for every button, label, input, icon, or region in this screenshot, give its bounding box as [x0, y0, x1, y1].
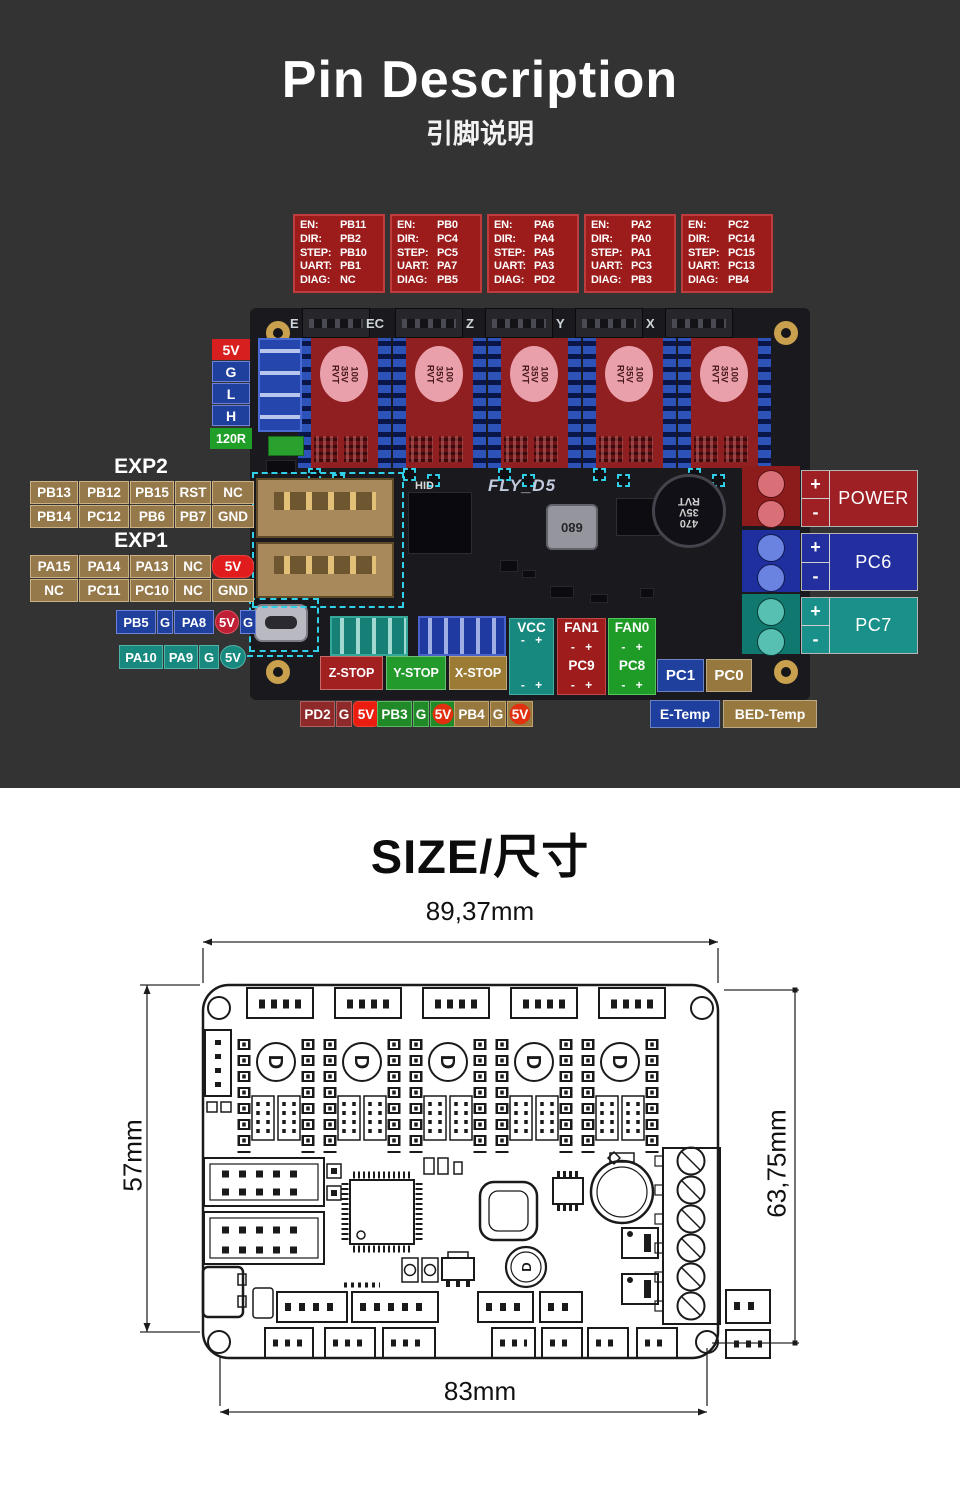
pin-key: UART: [688, 260, 728, 273]
pc9-label: PC9 [568, 659, 594, 673]
component [590, 594, 608, 603]
left-side-parts [203, 1030, 341, 1318]
exp-cell: PC11 [79, 579, 129, 602]
exp-cell: PA14 [79, 555, 129, 578]
jumper-block [694, 436, 718, 462]
screw [757, 598, 785, 626]
svg-text:D: D [436, 1055, 458, 1069]
pin-key: DIR: [494, 233, 534, 246]
pin-value: PC2 [728, 219, 767, 232]
fan1-label: FAN1 [564, 621, 599, 635]
exp-cell: PB15 [130, 481, 174, 504]
plus-mark: + [802, 471, 829, 499]
connector-pins [309, 319, 363, 328]
pin-value: PB3 [631, 274, 670, 287]
exp-cell: PA15 [30, 555, 78, 578]
pc6-terminal-label: + - PC6 [801, 533, 918, 591]
usb-callout-outline [249, 598, 319, 652]
exp2-row1: PB13 PB12 PB15 RST NC [30, 481, 255, 504]
page: Pin Description 引脚说明 E EC Z Y X [0, 0, 960, 1491]
connector-pins [672, 319, 726, 328]
connector-pins [492, 319, 546, 328]
exp-cell-5v: 5V [212, 555, 254, 578]
e-temp-label: E-Temp [650, 700, 720, 728]
pin-cell: PA8 [174, 610, 214, 634]
stepper-driver: 100 35V RVT [678, 338, 771, 468]
pin-socket [473, 338, 486, 468]
dim-height-right: 63,75mm [762, 1099, 793, 1229]
screw [757, 470, 785, 498]
pin-value: PB5 [437, 274, 476, 287]
driver-capacitor: 100 35V RVT [700, 346, 748, 402]
cap-text: RVT [520, 365, 530, 384]
motor-connector [302, 308, 370, 338]
cap-text: 100 [729, 365, 739, 384]
motor-connector [665, 308, 733, 338]
mcu-chip [408, 492, 472, 554]
pin-key: EN: [494, 219, 534, 232]
stepper-driver: 100 35V RVT [488, 338, 581, 468]
pc1-label: PC1 [657, 659, 704, 692]
pin-cell-5v: 5V [507, 701, 533, 727]
pin-cell: PD2 [300, 701, 335, 727]
pin-cell: G [240, 610, 256, 634]
pin-value: PB1 [340, 260, 379, 273]
jumper-block [409, 436, 433, 462]
exp-cell: PB7 [175, 505, 211, 528]
pin-value: PA0 [631, 233, 670, 246]
pin-value: PA4 [534, 233, 573, 246]
screw [757, 564, 785, 592]
motor-connector [395, 308, 463, 338]
stepper-driver: 100 35V RVT [583, 338, 676, 468]
pin-value: PA6 [534, 219, 573, 232]
electrolytic-capacitor: 470 35V RVT [652, 474, 726, 548]
polarity-marks: - + [621, 642, 642, 653]
port-label-x: X [646, 316, 655, 331]
exp2-title: EXP2 [30, 455, 252, 479]
level-g: G [212, 361, 250, 382]
jumper-block [504, 436, 528, 462]
pin-key: EN: [688, 219, 728, 232]
jumper-block [599, 436, 623, 462]
pin-key: DIAG: [688, 274, 728, 287]
terminator-jumper [268, 436, 304, 456]
pin-cell: G [336, 701, 352, 727]
mcu-drawing [345, 1175, 419, 1249]
fan1-pc9-header: FAN1 - + PC9 - + [557, 618, 606, 695]
cap-text: 100 [539, 365, 549, 384]
pin-value: PA7 [437, 260, 476, 273]
dimension-lines [140, 942, 799, 1412]
probe-connector [258, 338, 302, 432]
pin-cell-5v: 5V [215, 610, 239, 634]
x-stop-label: X-STOP [449, 656, 507, 690]
pin-socket [583, 338, 596, 468]
pin-key: UART: [591, 260, 631, 273]
cap-text: 35V [719, 365, 729, 384]
pb4-temp-header: PB4 G 5V [454, 701, 534, 727]
screw [757, 500, 785, 528]
svg-text:D: D [522, 1055, 544, 1069]
exp-cell: GND [212, 579, 254, 602]
jumper-pins [258, 1102, 638, 1134]
inductor: 680 [546, 504, 598, 550]
power-terminal-label: + - POWER [801, 470, 918, 527]
terminal-name: PC7 [830, 598, 917, 653]
motor-connector [575, 308, 643, 338]
polarity-marks: - + [571, 642, 592, 653]
plus-mark: + [802, 534, 829, 563]
mounting-hole [774, 321, 798, 345]
port-label-y: Y [556, 316, 565, 331]
probe-header-blue: PB5 G PA8 5V G [116, 610, 257, 634]
pin-key: EN: [300, 219, 340, 232]
exp1-row2: NC PC11 PC10 NC GND [30, 579, 255, 602]
exp-cell: GND [212, 505, 254, 528]
cap-text: RVT [615, 365, 625, 384]
cap-text: 35V [624, 365, 634, 384]
exp-cell: RST [175, 481, 211, 504]
bed-temp-label: BED-Temp [723, 700, 817, 728]
pin-socket [378, 338, 391, 468]
terminator-120r: 120R [210, 428, 252, 449]
cap-text: 100 [634, 365, 644, 384]
pc6-terminal-block [742, 530, 800, 592]
pin-description-section: Pin Description 引脚说明 E EC Z Y X [0, 0, 960, 788]
cap-text: 35V [434, 365, 444, 384]
polarity-column: + - [802, 534, 830, 590]
terminal-name: PC6 [830, 534, 917, 590]
level-h: H [212, 405, 250, 426]
power-terminal-block [742, 466, 800, 526]
pin-key: EN: [397, 219, 437, 232]
dim-width-bottom: 83mm [330, 1376, 630, 1407]
driver-capacitor: 100 35V RVT [605, 346, 653, 402]
stepper-driver: 100 35V RVT [298, 338, 391, 468]
pin-key: STEP: [688, 247, 728, 260]
pin-key: STEP: [494, 247, 534, 260]
pin-key: STEP: [591, 247, 631, 260]
cap-text: RVT [330, 365, 340, 384]
polarity-marks: - + [571, 680, 592, 691]
size-section: SIZE/尺寸 [0, 788, 960, 1491]
component [640, 588, 654, 598]
board-outline [203, 985, 718, 1358]
uart-header [593, 468, 606, 481]
minus-mark: - [802, 499, 829, 526]
fan0-label: FAN0 [615, 621, 650, 635]
pin-cell: G [157, 610, 173, 634]
driver-pinout-x: EN:PC2 DIR:PC14 STEP:PC15 UART:PC13 DIAG… [681, 214, 773, 293]
pin-cell: PB3 [377, 701, 412, 727]
jumper-block [724, 436, 748, 462]
exp1-title: EXP1 [30, 529, 252, 553]
pin-key: UART: [300, 260, 340, 273]
pin-value: PB2 [340, 233, 379, 246]
exp1-row1: PA15 PA14 PA13 NC 5V [30, 555, 255, 578]
pin-value: PA2 [631, 219, 670, 232]
connector-pins [582, 319, 636, 328]
board-silkscreen: FLY_D5 [488, 476, 556, 496]
component [522, 570, 536, 578]
pin-socket [488, 338, 501, 468]
screw [757, 534, 785, 562]
vcc-header: VCC - + - + [509, 618, 554, 695]
pin-key: DIAG: [494, 274, 534, 287]
exp-cell: NC [30, 579, 78, 602]
pin-socket [663, 338, 676, 468]
exp-cell: PB14 [30, 505, 78, 528]
pin-value: PA5 [534, 247, 573, 260]
jumper-block [534, 436, 558, 462]
pin-key: DIAG: [397, 274, 437, 287]
exp-cell: NC [212, 481, 254, 504]
driver-pinout-e0: EN:PB11 DIR:PB2 STEP:PB10 UART:PB1 DIAG:… [293, 214, 385, 293]
driver-pinout-e1: EN:PB0 DIR:PC4 STEP:PC5 UART:PA7 DIAG:PB… [390, 214, 482, 293]
cap-text: RVT [425, 365, 435, 384]
pin-cell: G [199, 645, 219, 669]
pin-socket [758, 338, 771, 468]
exp2-row2: PB14 PC12 PB6 PB7 GND [30, 505, 255, 528]
terminal-column [655, 1148, 720, 1325]
pin-value: PC15 [728, 247, 767, 260]
pin-value: PA3 [534, 260, 573, 273]
component [500, 560, 518, 572]
polarity-marks: - + [621, 680, 642, 691]
pin-value: PC3 [631, 260, 670, 273]
pin-key: EN: [591, 219, 631, 232]
minus-mark: - [802, 563, 829, 591]
pin-key: DIAG: [591, 274, 631, 287]
page-title: Pin Description [0, 50, 960, 110]
uart-header [617, 474, 630, 487]
mounting-hole [774, 660, 798, 684]
pin-value: PB4 [728, 274, 767, 287]
pc7-terminal-block [742, 594, 800, 654]
bottom-connector-teal [330, 616, 408, 656]
pin-cell-5v: 5V [430, 701, 456, 727]
pd2-temp-header: PD2 G 5V [300, 701, 380, 727]
pin-cell: G [490, 701, 506, 727]
pc7-terminal-label: + - PC7 [801, 597, 918, 654]
pin-value: PC4 [437, 233, 476, 246]
dim-width-top: 89,37mm [330, 896, 630, 927]
pin-cell: PA9 [164, 645, 198, 669]
plus-mark: + [802, 598, 829, 626]
svg-text:D: D [608, 1055, 630, 1069]
jumper-block [629, 436, 653, 462]
pin-cell: PB5 [116, 610, 156, 634]
pin-key: DIAG: [300, 274, 340, 287]
motor-connector [485, 308, 553, 338]
pin-value: NC [340, 274, 379, 287]
jumper-block [344, 436, 368, 462]
pin-cell: PB4 [454, 701, 489, 727]
pin-cell-5v: 5V [220, 645, 246, 669]
stepper-driver: 100 35V RVT [393, 338, 486, 468]
pin-value: PC13 [728, 260, 767, 273]
pin-key: STEP: [397, 247, 437, 260]
cap-text: RVT [710, 365, 720, 384]
pin-socket [568, 338, 581, 468]
driver-pinout-y: EN:PA2 DIR:PA0 STEP:PA1 UART:PC3 DIAG:PB… [584, 214, 676, 293]
pin-socket [393, 338, 406, 468]
page-subtitle: 引脚说明 [0, 112, 960, 151]
exp-callout-outline [252, 472, 404, 608]
exp-cell: PB12 [79, 481, 129, 504]
pin-key: DIR: [688, 233, 728, 246]
connector-pins [402, 319, 456, 328]
pin-value: PA1 [631, 247, 670, 260]
exp-cell: PA13 [130, 555, 174, 578]
polarity-marks: - + [521, 680, 542, 691]
polarity-column: + - [802, 598, 830, 653]
bottom-connector-blue [418, 616, 506, 656]
cap-text: 35V [339, 365, 349, 384]
level-5v: 5V [212, 339, 250, 360]
polarity-marks: - + [521, 635, 542, 646]
jumper-block [314, 436, 338, 462]
cap-text: 35V [678, 506, 700, 517]
pin-value: PD2 [534, 274, 573, 287]
cap-text: RVT [678, 495, 700, 506]
cap-text: 35V [529, 365, 539, 384]
pin-key: UART: [494, 260, 534, 273]
pin-cell-5v: 5V [353, 701, 379, 727]
driver-capacitor: 100 35V RVT [415, 346, 463, 402]
port-label-ec: EC [366, 316, 384, 331]
dim-height-left: 57mm [118, 1091, 149, 1221]
pin-value: PC14 [728, 233, 767, 246]
svg-text:D: D [264, 1055, 286, 1069]
jumper-blocks [252, 1096, 644, 1140]
minus-mark: - [802, 626, 829, 653]
pin-socket [678, 338, 691, 468]
component [550, 586, 574, 598]
small-cap-letter: D [519, 1262, 534, 1271]
capacitor-letters: D D D D D [264, 1055, 630, 1069]
pin-key: STEP: [300, 247, 340, 260]
pin-value: PB0 [437, 219, 476, 232]
pin-cell: G [413, 701, 429, 727]
svg-text:D: D [350, 1055, 372, 1069]
exp-cell: PC10 [130, 579, 174, 602]
pin-key: DIR: [300, 233, 340, 246]
pin-key: DIR: [397, 233, 437, 246]
exp-cell: PB13 [30, 481, 78, 504]
y-stop-label: Y-STOP [386, 656, 446, 690]
mounting-hole [266, 660, 290, 684]
inductor-text: 680 [561, 520, 583, 535]
callout-line [247, 655, 313, 657]
cap-text: 100 [349, 365, 359, 384]
polarity-column: + - [802, 471, 830, 526]
port-label-z: Z [466, 316, 474, 331]
cap-text: 470 [678, 517, 700, 528]
level-l: L [212, 383, 250, 404]
port-label-e: E [290, 316, 299, 331]
exp-cell: NC [175, 555, 211, 578]
fan0-pc8-header: FAN0 - + PC8 - + [608, 618, 656, 695]
exp-cell: PC12 [79, 505, 129, 528]
probe-header-teal: PA10 PA9 G 5V [119, 645, 247, 669]
pin-cell: PA10 [119, 645, 163, 669]
pin-value: PB10 [340, 247, 379, 260]
pc8-label: PC8 [619, 659, 645, 673]
exp-cell: PB6 [130, 505, 174, 528]
hid-silkscreen: HID [415, 480, 434, 492]
driver-capacitor: 100 35V RVT [320, 346, 368, 402]
pin-value: PC5 [437, 247, 476, 260]
driver-pinout-z: EN:PA6 DIR:PA4 STEP:PA5 UART:PA3 DIAG:PD… [487, 214, 579, 293]
pin-key: DIR: [591, 233, 631, 246]
terminal-name: POWER [830, 471, 917, 526]
pc0-label: PC0 [706, 659, 752, 692]
pin-key: UART: [397, 260, 437, 273]
middle-components [344, 1152, 658, 1304]
z-stop-label: Z-STOP [320, 656, 383, 690]
jumper-block [439, 436, 463, 462]
cap-text: 100 [444, 365, 454, 384]
driver-capacitor: 100 35V RVT [510, 346, 558, 402]
mosfet-details [331, 1168, 651, 1298]
exp-cell: NC [175, 579, 211, 602]
screw [757, 628, 785, 656]
top-connectors [247, 988, 665, 1018]
pin-value: PB11 [340, 219, 379, 232]
pb3-temp-header: PB3 G 5V [377, 701, 457, 727]
